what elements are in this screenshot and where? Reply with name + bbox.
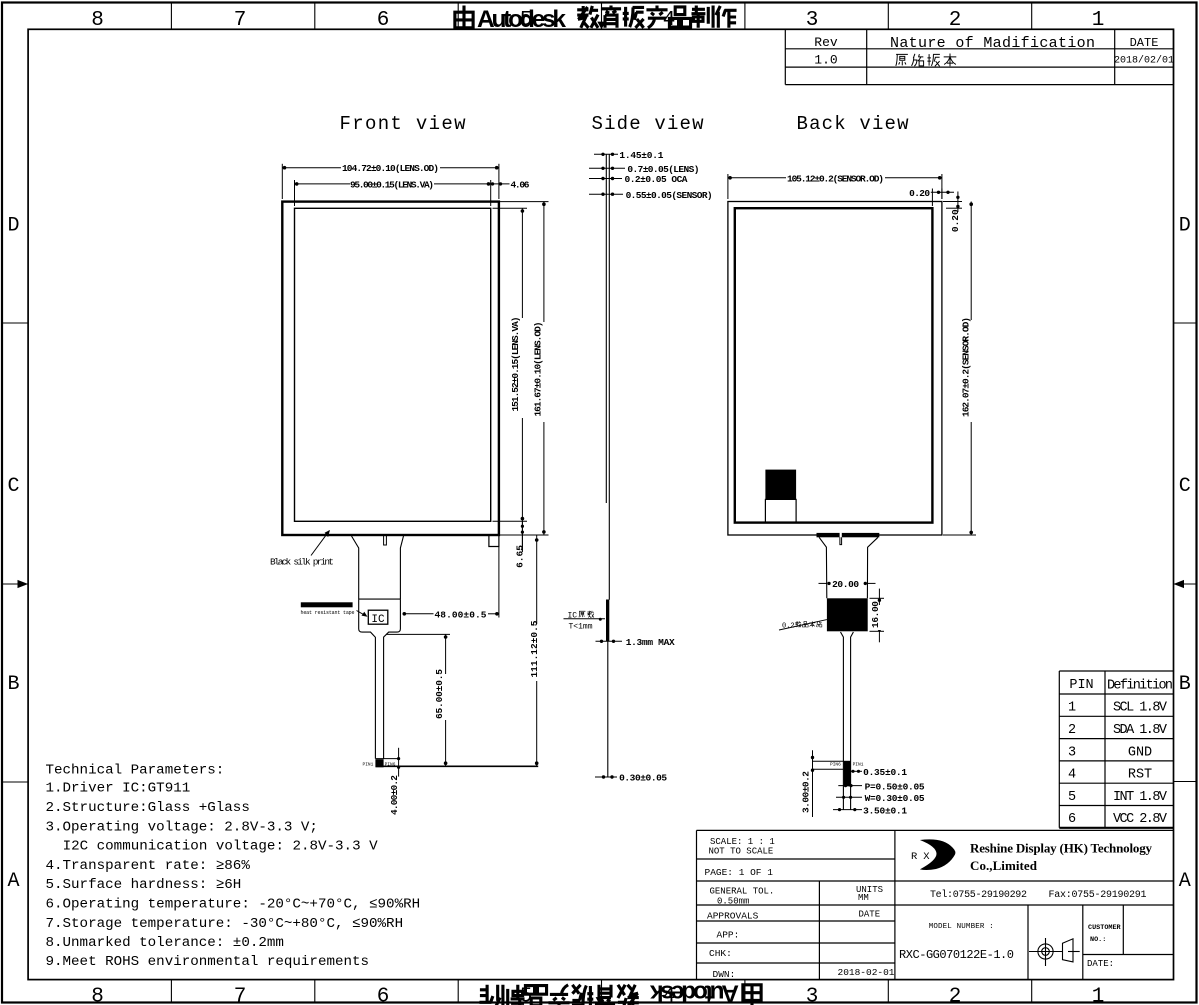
svg-text:SCALE: 1 : 1: SCALE: 1 : 1 [710,837,775,847]
svg-text:2.Structure:Glass +Glass: 2.Structure:Glass +Glass [46,800,250,816]
svg-text:6: 6 [377,986,390,1005]
svg-text:1: 1 [1092,986,1105,1005]
svg-text:48.00±0.5: 48.00±0.5 [435,610,487,621]
svg-text:3.50±0.1: 3.50±0.1 [863,805,907,816]
svg-text:151.52±0.15(LENS.VA): 151.52±0.15(LENS.VA) [510,317,521,412]
svg-text:0.50mm: 0.50mm [717,897,749,907]
svg-text:P=0.50±0.05: P=0.50±0.05 [865,781,925,792]
svg-text:PAGE: 1 OF 1: PAGE: 1 OF 1 [705,867,774,878]
svg-text:3.Operating voltage: 2.8V-3.3: 3.Operating voltage: 2.8V-3.3 V; [46,820,318,836]
svg-text:1.3mm MAX: 1.3mm MAX [626,637,675,648]
svg-text:C: C [7,475,19,498]
svg-text:NOT TO SCALE: NOT TO SCALE [709,847,774,857]
svg-text:CHK:: CHK: [709,948,732,959]
svg-text:DWN:: DWN: [713,969,736,980]
svg-text:3: 3 [806,9,819,32]
svg-text:heat resistant tape: heat resistant tape [301,610,355,616]
svg-text:2: 2 [949,9,962,32]
svg-text:9.Meet ROHS environmental requ: 9.Meet ROHS environmental requirements [46,954,370,970]
svg-text:D: D [1179,215,1191,238]
svg-text:Back view: Back view [797,113,910,135]
svg-text:0.20: 0.20 [909,188,930,199]
svg-text:6: 6 [1068,812,1076,827]
svg-text:4.Transparent rate: ≥86%: 4.Transparent rate: ≥86% [46,858,251,874]
svg-text:SDA 1.8V: SDA 1.8V [1113,723,1168,738]
svg-text:1: 1 [1068,701,1076,716]
svg-text:2: 2 [1068,723,1076,738]
svg-text:PIN: PIN [1069,678,1093,693]
svg-text:MODEL NUMBER :: MODEL NUMBER : [929,923,994,931]
svg-text:4.00±0.2: 4.00±0.2 [389,775,400,815]
svg-text:2: 2 [949,986,962,1005]
svg-text:X: X [923,851,930,863]
svg-text:1: 1 [1092,9,1105,32]
svg-text:T<1mm: T<1mm [569,623,593,632]
svg-text:0.55±0.05(SENSOR): 0.55±0.05(SENSOR) [626,190,713,201]
svg-text:C: C [1179,475,1191,498]
svg-text:111.12±0.5: 111.12±0.5 [529,620,540,677]
svg-text:Black silk print: Black silk print [270,556,334,567]
svg-text:GENERAL TOL.: GENERAL TOL. [710,887,775,897]
svg-text:65.00±0.5: 65.00±0.5 [434,669,445,719]
svg-text:B: B [1179,673,1191,696]
svg-text:PIN6: PIN6 [830,761,841,767]
svg-text:Reshine Display (HK) Technolog: Reshine Display (HK) Technology [970,841,1153,856]
svg-text:R: R [911,851,918,863]
svg-text:4: 4 [1068,768,1076,783]
svg-text:8: 8 [91,986,104,1005]
svg-text:RXC-GG070122E-1.0: RXC-GG070122E-1.0 [899,948,1014,962]
svg-text:7.Storage temperature: -30°C~+: 7.Storage temperature: -30°C~+80°C, ≤90%… [46,916,404,932]
svg-text:SCL 1.8V: SCL 1.8V [1113,701,1168,716]
svg-text:20.00: 20.00 [832,579,859,590]
svg-text:5.Surface hardness: ≥6H: 5.Surface hardness: ≥6H [46,877,242,893]
svg-text:DATE:: DATE: [1087,959,1114,969]
svg-text:162.07±0.2(SENSOR.OD): 162.07±0.2(SENSOR.OD) [961,317,972,417]
svg-text:VCC 2.8V: VCC 2.8V [1113,812,1168,827]
svg-text:A: A [7,870,19,893]
svg-text:8.Unmarked tolerance: ±0.2mm: 8.Unmarked tolerance: ±0.2mm [46,935,284,951]
svg-text:7: 7 [234,9,247,32]
svg-text:DATE: DATE [859,910,881,920]
svg-text:5: 5 [1068,790,1076,805]
svg-text:2018/02/01: 2018/02/01 [1114,55,1174,67]
svg-text:6.65: 6.65 [515,545,526,568]
svg-text:6: 6 [377,9,390,32]
svg-text:Co.,Limited: Co.,Limited [970,858,1038,873]
svg-text:Tel:0755-29190292: Tel:0755-29190292 [930,889,1027,901]
svg-text:NO.:: NO.: [1090,936,1106,944]
svg-text:I2C communication voltage: 2.8: I2C communication voltage: 2.8V-3.3 V [63,839,378,855]
svg-text:3: 3 [1068,745,1076,760]
svg-text:PIN1: PIN1 [363,762,374,768]
svg-text:0.35±0.1: 0.35±0.1 [863,767,907,778]
svg-text:Autodesk: Autodesk [650,980,739,1005]
svg-text:PIN6: PIN6 [385,762,396,768]
svg-text:APP:: APP: [717,930,740,941]
svg-text:3: 3 [806,986,819,1005]
svg-text:A: A [1179,870,1191,893]
svg-text:Autodesk: Autodesk [477,6,566,33]
svg-text:6.Operating temperature: -20°C: 6.Operating temperature: -20°C~+70°C, ≤9… [46,897,421,913]
svg-text:16.00: 16.00 [870,601,881,628]
svg-text:161.67±0.10(LENS.OD): 161.67±0.10(LENS.OD) [533,322,544,417]
svg-text:D: D [7,215,19,238]
svg-text:B: B [7,673,19,696]
svg-text:PIN1: PIN1 [853,761,864,767]
svg-text:DATE: DATE [1130,36,1159,50]
svg-text:104.72±0.10(LENS.OD): 104.72±0.10(LENS.OD) [342,163,439,174]
svg-text:2018-02-01: 2018-02-01 [838,967,895,978]
svg-text:Definition: Definition [1107,679,1173,694]
svg-text:Side view: Side view [592,113,705,135]
svg-text:Front view: Front view [340,113,467,135]
svg-text:RST: RST [1128,768,1152,783]
svg-text:Technical Parameters:: Technical Parameters: [46,762,225,778]
svg-text:CUSTOMER: CUSTOMER [1088,924,1122,932]
svg-text:0.2±0.05 OCA: 0.2±0.05 OCA [625,174,688,185]
svg-text:3.00±0.2: 3.00±0.2 [800,771,811,813]
svg-text:W=0.30±0.05: W=0.30±0.05 [865,793,925,804]
svg-text:7: 7 [234,986,247,1005]
svg-text:0.30±0.05: 0.30±0.05 [619,773,667,784]
svg-text:APPROVALS: APPROVALS [707,911,759,922]
svg-text:1.0: 1.0 [814,53,837,68]
svg-text:0.20: 0.20 [950,209,961,232]
svg-text:1.45±0.1: 1.45±0.1 [619,150,663,161]
svg-text:GND: GND [1128,745,1152,760]
svg-text:8: 8 [91,9,104,32]
svg-text:INT 1.8V: INT 1.8V [1113,790,1168,805]
svg-text:MM: MM [858,893,869,903]
svg-text:IC: IC [371,614,385,626]
svg-text:1.Driver IC:GT911: 1.Driver IC:GT911 [46,781,191,797]
svg-text:Rev: Rev [814,35,838,50]
svg-text:Fax:0755-29190291: Fax:0755-29190291 [1049,890,1147,901]
svg-text:Nature of Madification: Nature of Madification [890,35,1095,52]
svg-text:105.12±0.2(SENSOR.OD): 105.12±0.2(SENSOR.OD) [787,173,884,184]
svg-text:4.06: 4.06 [511,179,530,190]
svg-text:95.00±0.15(LENS.VA): 95.00±0.15(LENS.VA) [350,179,434,190]
